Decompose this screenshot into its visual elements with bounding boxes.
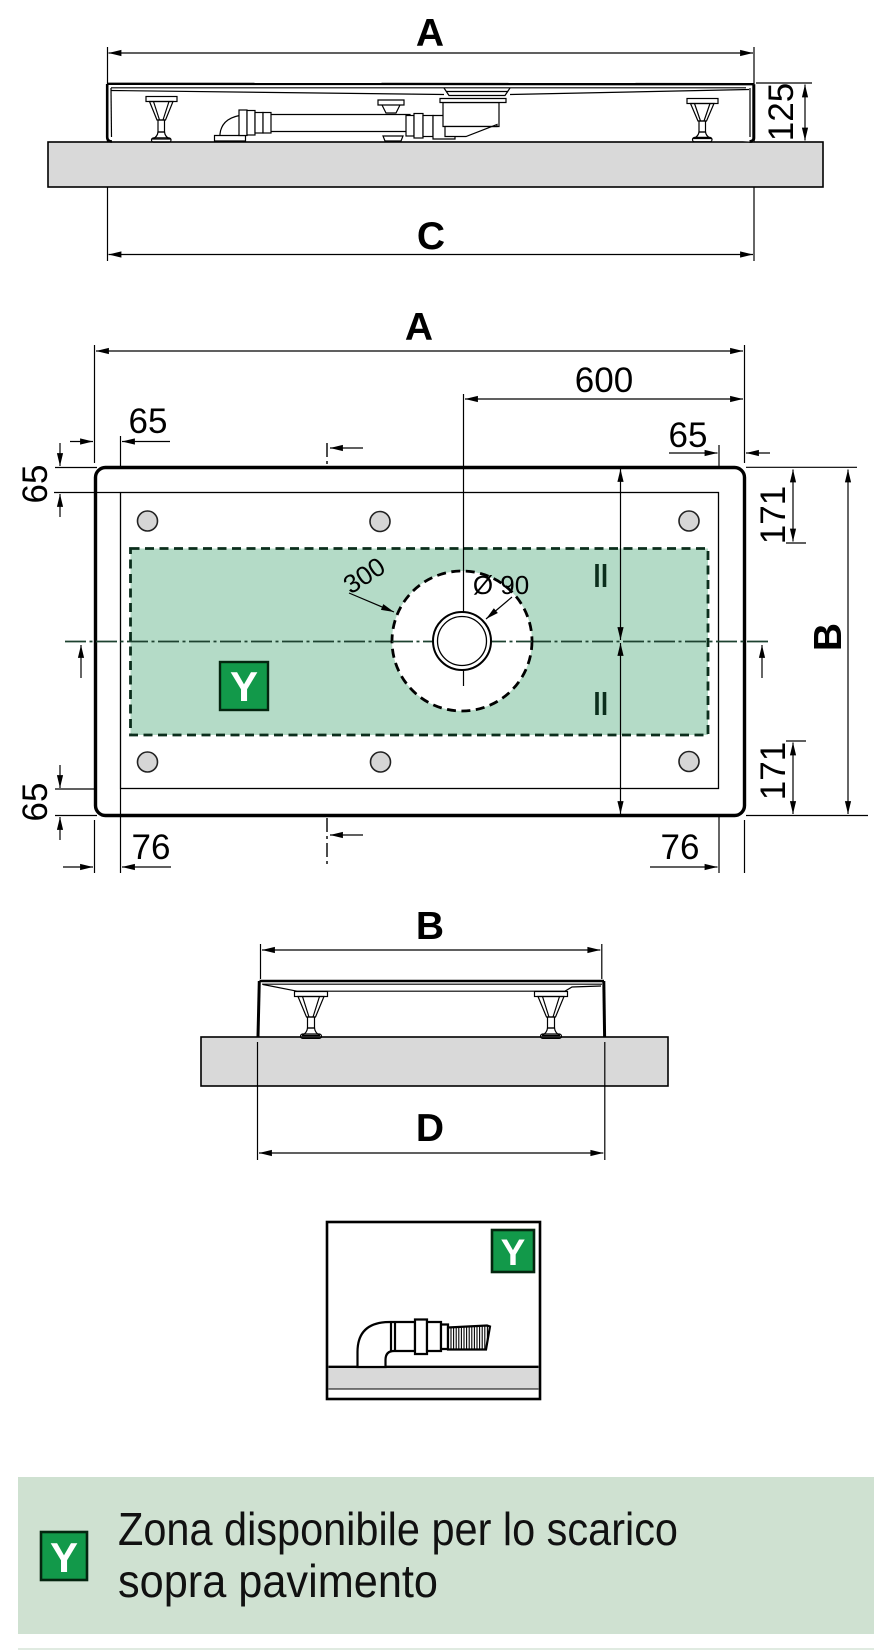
svg-text:Zona disponibile per lo scaric: Zona disponibile per lo scarico <box>118 1503 678 1555</box>
svg-text:171: 171 <box>754 742 793 800</box>
svg-text:A: A <box>416 12 444 55</box>
svg-text:Y: Y <box>50 1534 78 1581</box>
svg-text:65: 65 <box>129 402 168 441</box>
svg-text:600: 600 <box>575 361 633 400</box>
svg-text:Y: Y <box>230 663 258 710</box>
svg-text:sopra pavimento: sopra pavimento <box>118 1555 438 1607</box>
svg-text:A: A <box>405 306 433 349</box>
svg-text:171: 171 <box>754 486 793 544</box>
svg-text:C: C <box>417 215 445 258</box>
svg-text:76: 76 <box>132 828 171 867</box>
svg-text:65: 65 <box>16 783 55 822</box>
svg-text:Y: Y <box>501 1232 526 1273</box>
svg-text:B: B <box>807 623 850 651</box>
svg-text:D: D <box>416 1107 444 1150</box>
svg-text:76: 76 <box>661 828 700 867</box>
svg-text:Ø 90: Ø 90 <box>473 570 529 600</box>
svg-text:B: B <box>416 905 444 948</box>
svg-text:65: 65 <box>669 416 708 455</box>
svg-text:125: 125 <box>762 83 801 141</box>
svg-text:65: 65 <box>16 465 55 504</box>
